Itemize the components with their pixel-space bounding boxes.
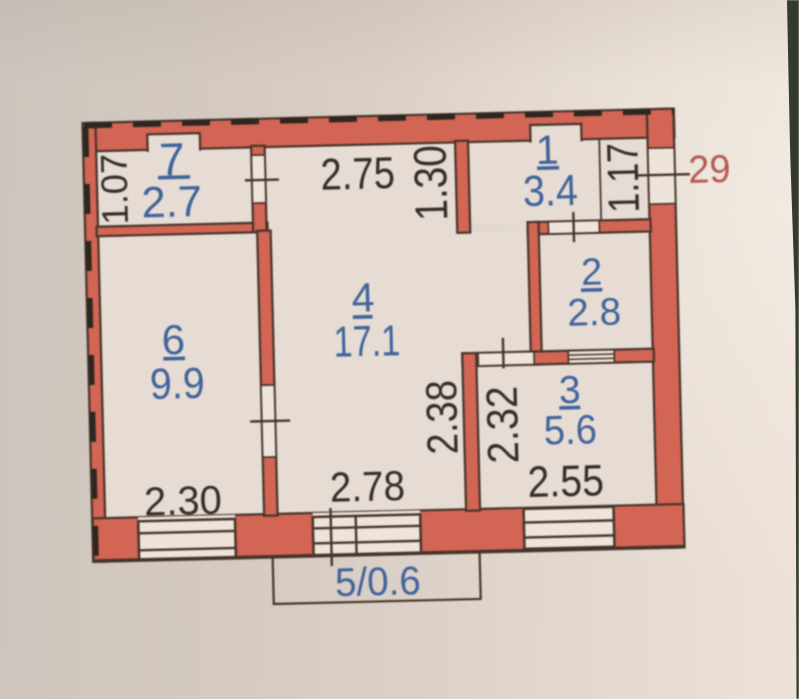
- svg-text:2.55: 2.55: [527, 456, 604, 507]
- svg-text:4: 4: [351, 274, 375, 321]
- svg-text:2.8: 2.8: [567, 290, 622, 334]
- svg-text:29: 29: [688, 148, 731, 192]
- svg-text:1.17: 1.17: [598, 142, 649, 213]
- svg-text:9.9: 9.9: [149, 360, 205, 409]
- svg-text:6: 6: [161, 316, 186, 364]
- svg-text:2: 2: [581, 251, 603, 294]
- svg-text:5.6: 5.6: [543, 406, 597, 453]
- svg-text:5/0.6: 5/0.6: [335, 559, 422, 605]
- svg-text:2.32: 2.32: [478, 385, 529, 464]
- svg-text:3.4: 3.4: [522, 167, 578, 216]
- svg-text:2.30: 2.30: [144, 478, 223, 525]
- svg-text:2.78: 2.78: [329, 462, 405, 511]
- svg-text:1.30: 1.30: [404, 145, 458, 222]
- svg-text:2.38: 2.38: [418, 379, 468, 455]
- svg-text:17.1: 17.1: [333, 317, 401, 367]
- svg-text:2.75: 2.75: [320, 149, 395, 200]
- svg-text:2.7: 2.7: [141, 178, 203, 227]
- svg-text:1.07: 1.07: [93, 153, 136, 225]
